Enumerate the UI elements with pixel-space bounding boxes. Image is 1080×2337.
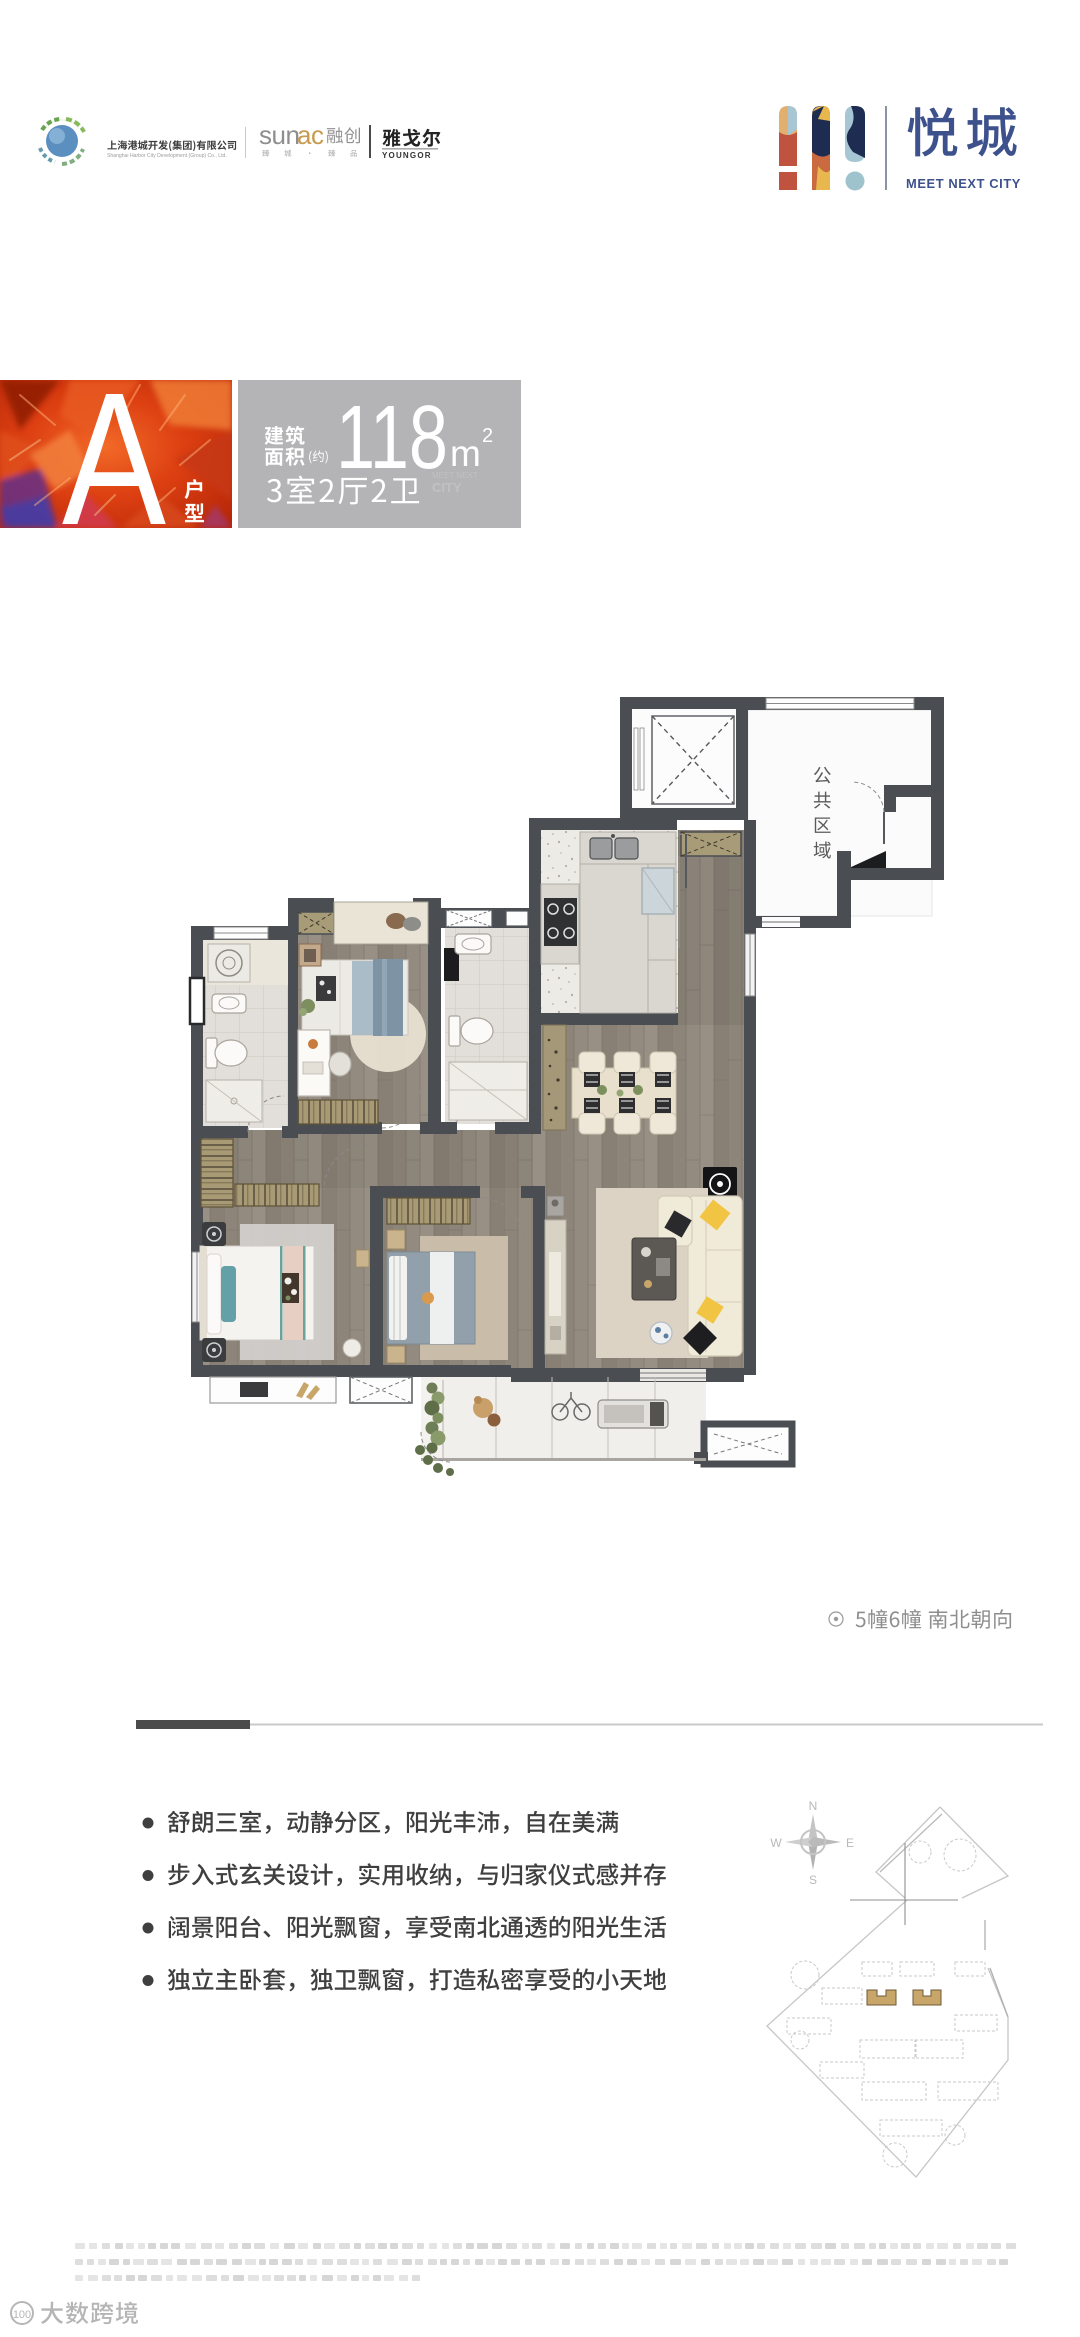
svg-text:N: N [809,1799,818,1813]
svg-text:MEET NEXT: MEET NEXT [432,471,478,480]
svg-text:S: S [809,1873,817,1887]
svg-text:A: A [62,354,166,565]
svg-text:CITY: CITY [432,480,462,495]
svg-text:sun: sun [259,120,299,150]
svg-text:m: m [450,433,481,474]
svg-text:Shanghai Harbor City Develo: Shanghai Harbor City Development (Group)… [107,153,227,159]
svg-text:MEET NEXT CITY: MEET NEXT CITY [906,176,1021,191]
svg-text:ac: ac [297,120,324,150]
svg-text:YOUNGOR: YOUNGOR [382,151,432,160]
svg-text:2: 2 [482,425,493,447]
svg-text:100: 100 [13,2309,31,2321]
svg-text:E: E [846,1836,854,1850]
svg-text:W: W [770,1836,782,1850]
